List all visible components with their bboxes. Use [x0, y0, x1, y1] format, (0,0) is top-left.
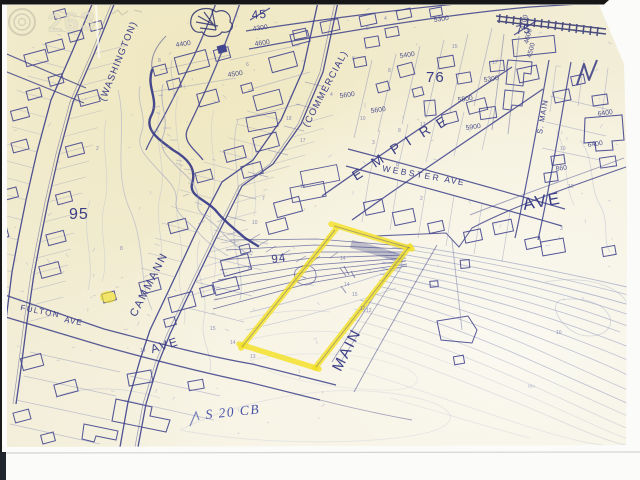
svg-text:10: 10	[560, 146, 566, 152]
svg-text:14: 14	[300, 184, 306, 190]
svg-text:10: 10	[568, 184, 574, 190]
svg-text:Mo.: Mo.	[528, 383, 537, 390]
svg-text:10: 10	[252, 220, 258, 226]
svg-text:15: 15	[210, 326, 216, 332]
svg-text:4: 4	[330, 92, 333, 98]
svg-text:6: 6	[352, 56, 355, 62]
svg-text:17: 17	[492, 60, 498, 66]
svg-text:15: 15	[352, 292, 358, 298]
svg-text:12: 12	[360, 306, 366, 312]
svg-text:2: 2	[96, 146, 99, 152]
svg-text:3: 3	[560, 226, 563, 232]
svg-text:14: 14	[230, 340, 236, 346]
svg-text:76: 76	[426, 69, 445, 86]
svg-text:10: 10	[556, 330, 562, 336]
svg-text:95: 95	[69, 206, 89, 223]
svg-text:7: 7	[262, 196, 265, 202]
svg-text:2: 2	[420, 196, 423, 202]
svg-text:8: 8	[396, 162, 399, 168]
svg-text:6: 6	[246, 62, 249, 68]
svg-text:17: 17	[300, 138, 306, 144]
svg-text:8: 8	[158, 58, 161, 64]
svg-text:6: 6	[366, 26, 369, 32]
svg-text:14: 14	[340, 256, 346, 262]
svg-text:8: 8	[388, 68, 391, 74]
svg-text:3: 3	[372, 140, 375, 146]
svg-text:12: 12	[366, 308, 372, 314]
svg-text:94: 94	[271, 252, 287, 266]
svg-text:14: 14	[344, 282, 350, 288]
svg-text:15: 15	[452, 44, 458, 50]
svg-text:17: 17	[420, 122, 426, 128]
svg-text:14: 14	[140, 348, 146, 354]
svg-text:13: 13	[250, 354, 256, 360]
svg-text:263: 263	[47, 5, 98, 38]
svg-text:8: 8	[398, 128, 401, 134]
svg-text:18: 18	[286, 116, 292, 122]
svg-text:10: 10	[360, 116, 366, 122]
svg-text:8: 8	[120, 246, 123, 252]
svg-text:4: 4	[384, 16, 387, 22]
